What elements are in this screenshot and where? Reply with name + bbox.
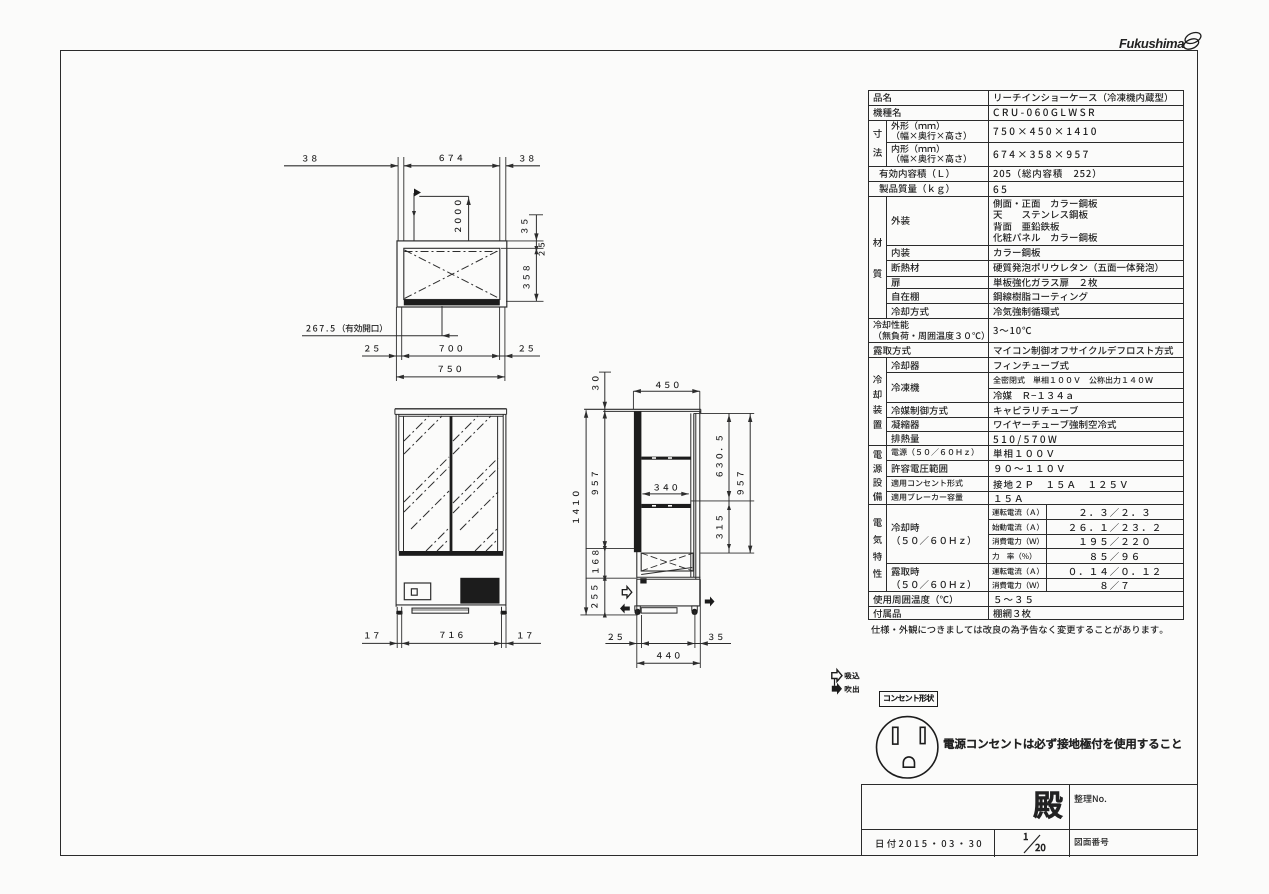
svg-text:１７: １７ [363,630,381,642]
svg-text:２５５: ２５５ [589,583,601,610]
svg-text:７５０: ７５０ [436,363,463,375]
svg-text:1: 1 [1023,829,1028,843]
svg-text:４４０: ４４０ [655,650,682,662]
svg-text:３４０: ３４０ [652,482,679,494]
svg-text:吸込: 吸込 [844,671,860,682]
svg-text:４５０: ４５０ [654,379,681,391]
svg-text:３０: ３０ [590,374,602,392]
svg-text:６３０．５: ６３０．５ [714,433,726,478]
svg-text:吹出: 吹出 [844,684,860,695]
svg-text:９５７: ９５７ [589,469,601,496]
svg-text:20: 20 [1035,840,1046,854]
svg-text:２５: ２５ [537,241,548,258]
svg-text:２０００: ２０００ [452,198,464,234]
svg-text:１４１０: １４１０ [570,489,582,525]
svg-text:267.5（有効開口）: 267.5（有効開口） [306,322,388,335]
svg-text:３５: ３５ [519,217,531,235]
svg-text:２５: ２５ [517,343,535,355]
svg-text:３８: ３８ [518,153,536,165]
svg-text:１７: １７ [516,630,534,642]
svg-text:９５７: ９５７ [735,469,747,496]
svg-text:７１６: ７１６ [438,629,465,641]
svg-text:３８: ３８ [301,153,319,165]
svg-text:２５: ２５ [363,343,381,355]
svg-text:３５: ３５ [707,631,725,643]
svg-text:６７４: ６７４ [437,152,464,164]
svg-text:１６８: １６８ [590,548,602,575]
svg-text:３１５: ３１５ [714,513,726,540]
svg-text:２５: ２５ [606,631,624,643]
svg-text:３５８: ３５８ [521,263,533,290]
svg-text:７００: ７００ [437,343,464,355]
